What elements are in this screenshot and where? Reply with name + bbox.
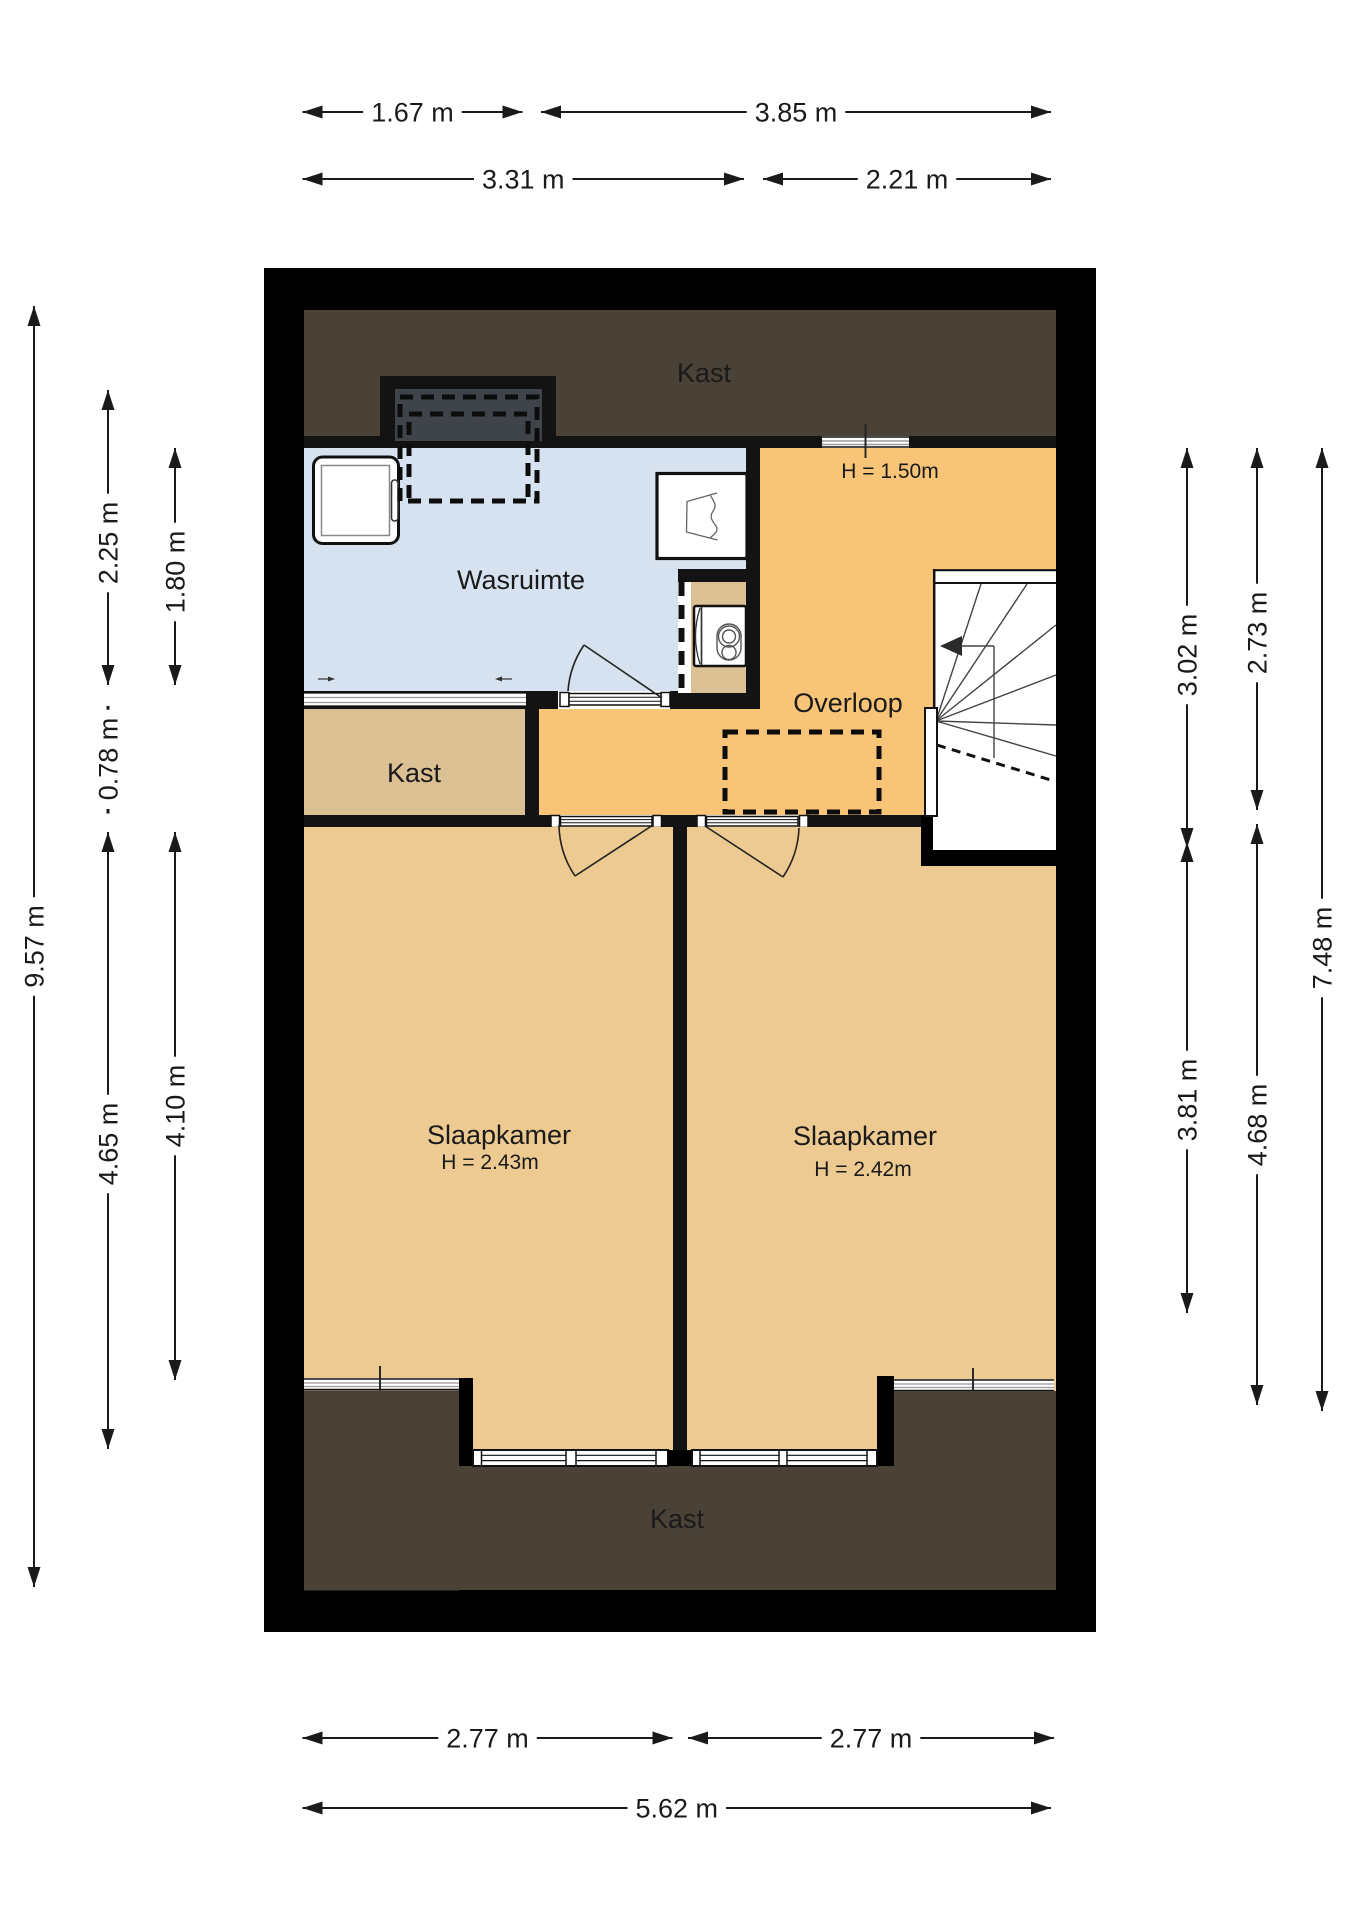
svg-text:2.25 m: 2.25 m [94,502,124,585]
svg-text:3.81 m: 3.81 m [1173,1059,1203,1142]
svg-text:Kast: Kast [387,758,442,788]
svg-text:3.31 m: 3.31 m [482,165,565,195]
svg-text:H = 1.50m: H = 1.50m [841,460,938,483]
svg-text:3.85 m: 3.85 m [755,98,838,128]
svg-text:7.48 m: 7.48 m [1308,907,1338,990]
svg-text:Kast: Kast [650,1504,705,1534]
svg-text:2.21 m: 2.21 m [866,165,949,195]
svg-text:H = 2.42m: H = 2.42m [814,1158,911,1181]
svg-text:0.78 m: 0.78 m [94,718,124,801]
svg-text:4.68 m: 4.68 m [1243,1084,1273,1167]
svg-text:2.77 m: 2.77 m [830,1724,913,1754]
svg-text:4.65 m: 4.65 m [94,1103,124,1186]
svg-text:3.02 m: 3.02 m [1173,614,1203,697]
svg-text:Slaapkamer: Slaapkamer [427,1120,571,1150]
svg-text:Wasruimte: Wasruimte [457,565,585,595]
svg-text:Kast: Kast [677,358,732,388]
svg-text:1.80 m: 1.80 m [161,531,191,614]
svg-text:H = 2.43m: H = 2.43m [441,1151,538,1174]
svg-text:Slaapkamer: Slaapkamer [793,1121,937,1151]
svg-text:Overloop: Overloop [793,688,903,718]
svg-text:4.10 m: 4.10 m [161,1065,191,1148]
svg-text:1.67 m: 1.67 m [371,98,454,128]
svg-text:2.77 m: 2.77 m [446,1724,529,1754]
svg-text:9.57 m: 9.57 m [20,905,50,988]
svg-text:2.73 m: 2.73 m [1243,592,1273,675]
svg-text:5.62 m: 5.62 m [635,1794,718,1824]
